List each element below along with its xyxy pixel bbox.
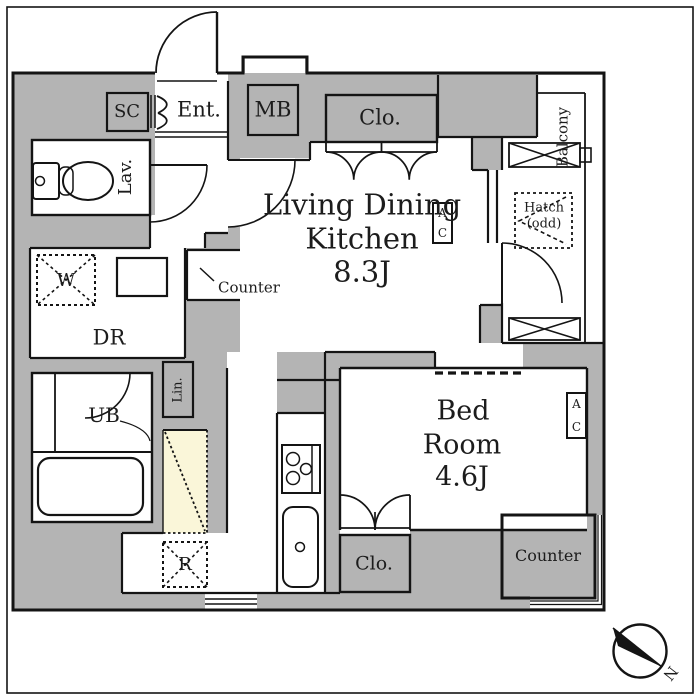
- label-bed-1: Bed: [436, 398, 489, 425]
- label-ldk-2: Kitchen: [305, 225, 418, 254]
- floorplan-page: SC Ent. MB Clo. Balcony Hatch (odd) Lav.…: [0, 0, 700, 700]
- label-counter-kitchen: Counter: [218, 281, 280, 296]
- label-dr: DR: [93, 328, 126, 349]
- label-hatch-2: (odd): [527, 218, 562, 231]
- label-ldk-3: 8.3J: [333, 258, 391, 287]
- label-sc: SC: [114, 103, 140, 121]
- label-ac-bedroom: AC: [567, 393, 586, 438]
- compass-icon: [613, 625, 667, 678]
- floorplan-drawing: [0, 0, 700, 700]
- label-mb: MB: [255, 100, 292, 121]
- label-lav: Lav.: [117, 159, 135, 195]
- label-lin: Lin.: [172, 377, 185, 402]
- label-bed-3: 4.6J: [435, 464, 489, 491]
- label-ldk-1: Living Dining: [263, 191, 461, 220]
- label-bed-2: Room: [423, 432, 501, 459]
- label-ac-ldk: AC: [433, 203, 452, 243]
- storage-strip: [163, 430, 207, 533]
- label-r: R: [178, 556, 192, 574]
- label-hatch-1: Hatch: [524, 202, 564, 215]
- label-clo-ldk: Clo.: [359, 108, 401, 129]
- label-ent: Ent.: [177, 100, 221, 121]
- label-w: W: [57, 272, 76, 290]
- label-balcony: Balcony: [556, 107, 571, 167]
- label-clo-bed: Clo.: [355, 555, 393, 574]
- label-counter-bed: Counter: [515, 548, 581, 564]
- label-ub: UB: [88, 405, 120, 425]
